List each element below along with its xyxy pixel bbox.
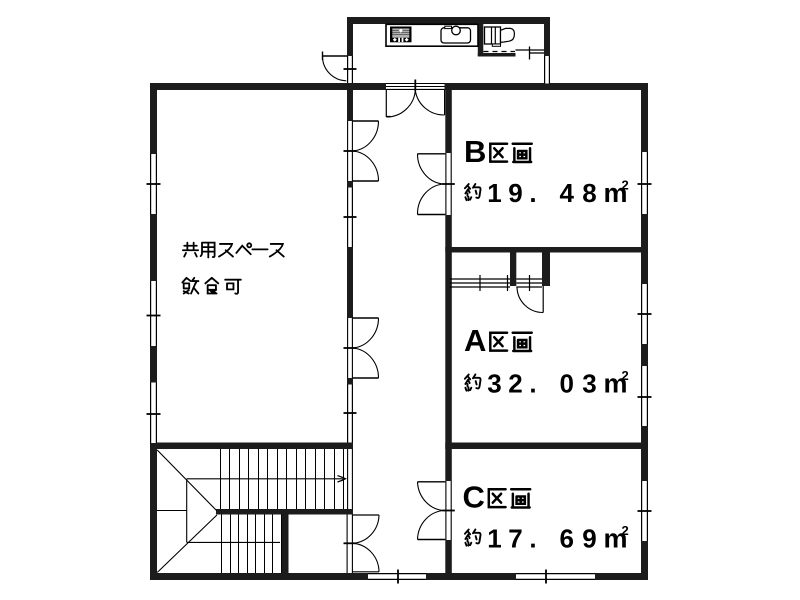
svg-text:C: C [463, 480, 485, 515]
svg-text:3: 3 [582, 369, 596, 399]
svg-text:.: . [529, 178, 536, 208]
svg-text:8: 8 [582, 178, 596, 208]
svg-text:4: 4 [559, 178, 574, 208]
svg-text:9: 9 [582, 524, 596, 554]
svg-text:B: B [464, 134, 486, 169]
svg-text:0: 0 [559, 369, 573, 399]
svg-text:.: . [529, 369, 536, 399]
svg-text:6: 6 [559, 524, 573, 554]
svg-text:2: 2 [622, 523, 629, 538]
svg-text:9: 9 [508, 178, 522, 208]
svg-text:3: 3 [487, 369, 501, 399]
svg-text:2: 2 [508, 369, 522, 399]
svg-text:A: A [464, 323, 486, 358]
svg-text:7: 7 [508, 524, 522, 554]
svg-text:.: . [529, 524, 536, 554]
svg-text:1: 1 [487, 178, 501, 208]
svg-text:2: 2 [622, 178, 629, 193]
svg-text:1: 1 [487, 524, 501, 554]
svg-text:2: 2 [622, 368, 629, 383]
